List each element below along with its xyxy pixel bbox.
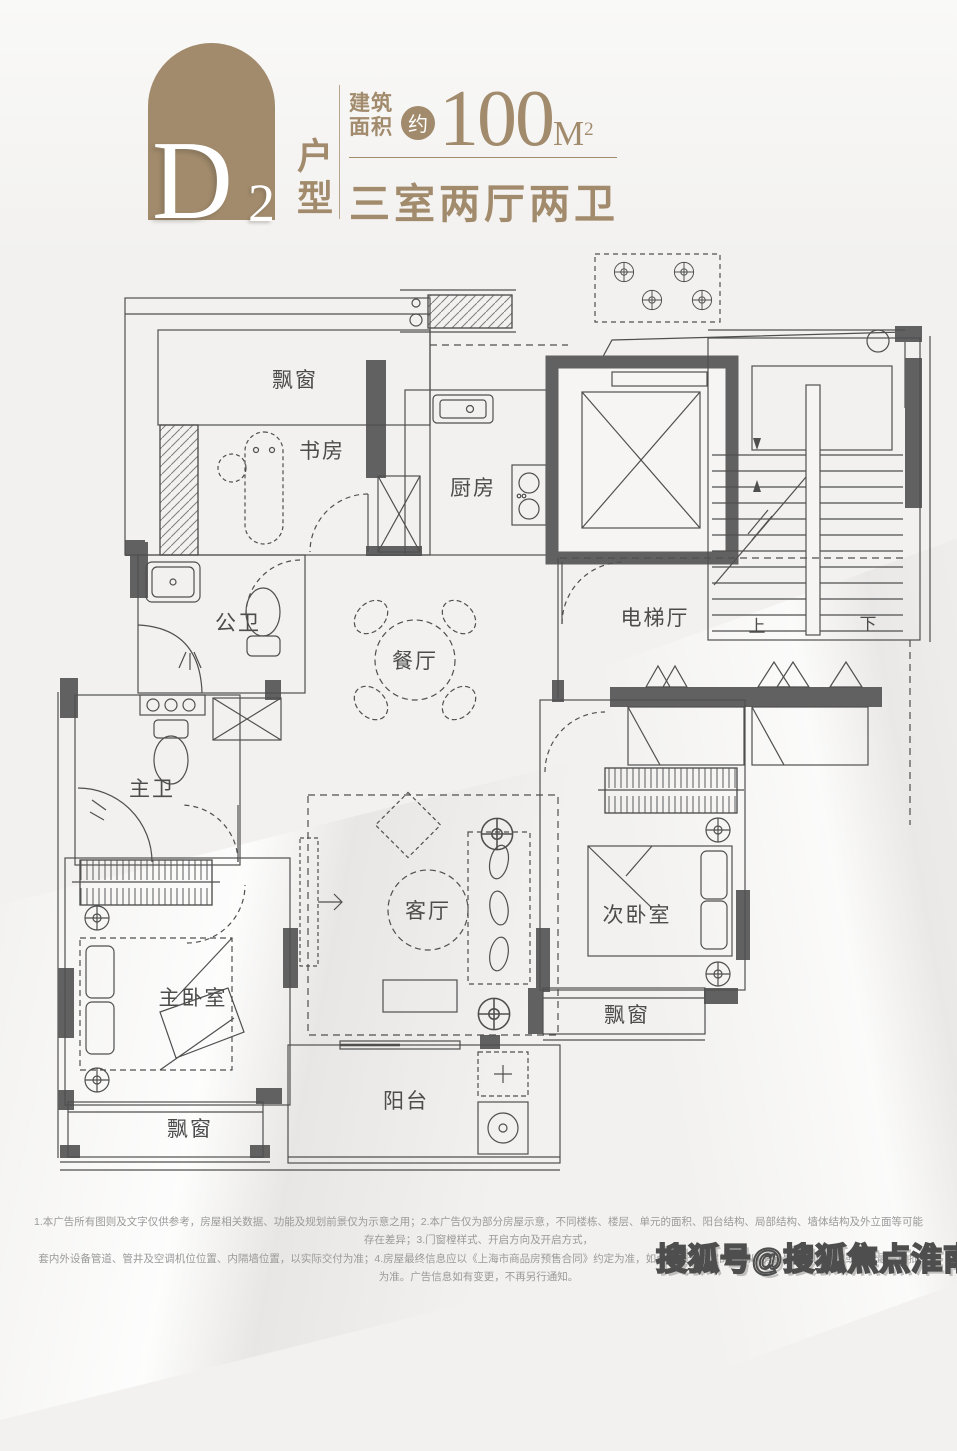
label-master-bath: 主卫 <box>129 778 175 801</box>
header-divider <box>339 85 340 219</box>
area-label: 建筑 面积 <box>349 91 393 152</box>
label-bay-window-right: 飘窗 <box>604 1004 650 1027</box>
area-unit: M2 <box>553 116 594 153</box>
label-dining: 餐厅 <box>392 650 438 673</box>
staircase: 上 下 <box>708 330 920 640</box>
label-public-bath: 公卫 <box>215 612 261 635</box>
label-elevator-hall: 电梯厅 <box>621 607 690 630</box>
label-second-bedroom: 次卧室 <box>603 904 672 927</box>
area-value: 100 <box>439 87 553 153</box>
plan-code-letter: D <box>152 138 233 225</box>
label-bay-window-top: 飘窗 <box>272 369 318 392</box>
approx-badge: 约 <box>401 106 435 140</box>
stairs-up-label: 上 <box>749 617 766 636</box>
label-kitchen: 厨房 <box>450 477 496 500</box>
elevator-shaft <box>552 362 732 558</box>
watermark: 搜狐号@搜狐焦点淮南站 <box>656 1234 957 1279</box>
stairs-down-label: 下 <box>860 615 877 634</box>
label-balcony: 阳台 <box>383 1090 429 1113</box>
room-master-bedroom <box>60 858 290 1162</box>
plan-type-label: 户型 <box>294 137 330 221</box>
area-row: 建筑 面积 约 100 M2 <box>349 87 631 153</box>
page: { "colors": { "accent": "#a28b6c", "plan… <box>0 0 957 1278</box>
header-right: 建筑 面积 约 100 M2 三室两厅两卫 <box>349 87 631 230</box>
plan-header: D 2 户型 建筑 面积 约 100 M2 三室两厅两卫 <box>118 43 638 225</box>
floor-plan-svg: 上 下 <box>0 240 957 1190</box>
label-master-bedroom: 主卧室 <box>159 987 228 1010</box>
plan-code-digit: 2 <box>248 182 275 225</box>
exterior-equipment <box>58 254 930 1170</box>
label-bay-window-bottom: 飘窗 <box>167 1118 213 1141</box>
layout-summary: 三室两厅两卫 <box>349 170 631 230</box>
room-kitchen <box>378 390 568 555</box>
hall-storage <box>140 695 281 740</box>
label-living: 客厅 <box>405 900 451 923</box>
label-study: 书房 <box>299 440 345 463</box>
